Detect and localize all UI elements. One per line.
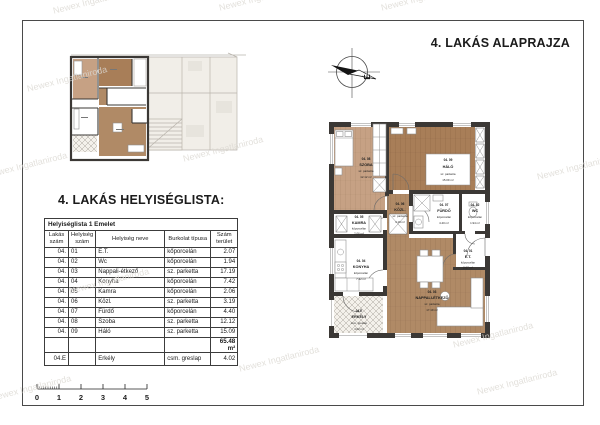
watermark: Newex Ingatlaniroda: [52, 0, 134, 16]
table-caption: Helyiséglista 1 Emelet: [45, 219, 238, 231]
page-title-roomlist: 4. LAKÁS HELYISÉGLISTA:: [58, 193, 224, 207]
svg-text:2: 2: [79, 393, 83, 402]
svg-text:4.40 m²: 4.40 m²: [439, 221, 449, 225]
svg-text:04. 02: 04. 02: [471, 203, 480, 207]
compass-icon: É: [326, 46, 382, 102]
table-row: 04.01E.T.kőporcelán2.07: [45, 248, 238, 258]
svg-text:4: 4: [123, 393, 128, 402]
watermark: Newex Ingatlaniroda: [380, 0, 462, 13]
svg-text:kőporcelán: kőporcelán: [354, 271, 369, 275]
table-row: 04.05Kamrakőporcelán2.06: [45, 288, 238, 298]
svg-text:2.07 m²: 2.07 m²: [463, 266, 473, 270]
room-list-table: Helyiséglista 1 Emelet Lakás szám Helyis…: [44, 218, 238, 366]
wardrobe-strip-boxes: [476, 128, 484, 188]
svg-text:04. 05: 04. 05: [355, 215, 364, 219]
overview-stairs: [146, 119, 182, 150]
compass-north-label: É: [363, 74, 372, 80]
svg-text:4.02 m²: 4.02 m²: [354, 327, 364, 331]
table-row: 04.07Fürdőkőporcelán4.40: [45, 308, 238, 318]
svg-text:kőporcelán: kőporcelán: [352, 227, 367, 231]
svg-text:KÖZL.: KÖZL.: [394, 207, 405, 212]
col-header: Szám terület: [211, 231, 238, 248]
svg-text:7.42 m²: 7.42 m²: [356, 277, 366, 281]
col-header: Helyiség szám: [69, 231, 96, 248]
svg-text:3: 3: [101, 393, 105, 402]
svg-text:HÁLÓ: HÁLÓ: [443, 164, 454, 169]
table-row: 04.04Konyhakőporcelán7.42: [45, 278, 238, 288]
svg-text:sz. parketta: sz. parketta: [441, 172, 456, 176]
svg-text:3.19 m²: 3.19 m²: [395, 220, 405, 224]
svg-text:12.12 m²: 12.12 m²: [360, 175, 371, 179]
svg-text:5: 5: [145, 393, 149, 402]
watermark: Newex Ingatlaniroda: [218, 0, 300, 13]
svg-text:kőporcelán: kőporcelán: [437, 215, 452, 219]
svg-text:sz. parketta: sz. parketta: [425, 302, 440, 306]
table-total-row: 65.48 m²: [45, 338, 238, 353]
total-area: 65.48 m²: [211, 338, 238, 353]
table-header-row: Lakás szám Helyiség szám Helyiség neve B…: [45, 231, 238, 248]
svg-text:E.T.: E.T.: [465, 255, 472, 259]
table-balcony-row: 04.E Erkélycsm. greslap 4.02: [45, 353, 238, 366]
table-row: 04.09Hálósz. parketta15.09: [45, 328, 238, 338]
svg-text:KONYHA: KONYHA: [353, 265, 370, 269]
svg-text:04. 07: 04. 07: [440, 203, 449, 207]
svg-text:ERKÉLY: ERKÉLY: [351, 314, 367, 319]
col-header: Lakás szám: [45, 231, 69, 248]
svg-text:04. 08: 04. 08: [362, 157, 371, 161]
scale-bar: 0 1 2 3 4 5: [30, 381, 154, 403]
overview-plan: [58, 53, 248, 173]
main-floorplan: 04. 08 SZOBA sz. parketta 12.12 m² 04. 0…: [325, 110, 510, 350]
svg-text:1: 1: [57, 393, 61, 402]
svg-text:SZOBA: SZOBA: [359, 163, 373, 167]
col-header: Helyiség neve: [96, 231, 165, 248]
label-halo: 04. 09 HÁLÓ sz. parketta 15.09 m²: [426, 154, 470, 185]
svg-text:kőporcelán: kőporcelán: [461, 261, 476, 265]
svg-text:kőporcelán: kőporcelán: [468, 215, 483, 219]
col-header: Burkolat típusa: [165, 231, 211, 248]
svg-text:2.06 m²: 2.06 m²: [354, 232, 364, 236]
svg-text:WC: WC: [472, 209, 479, 213]
wardrobe-symbol: [373, 124, 386, 192]
svg-text:04.E: 04.E: [356, 309, 363, 313]
svg-text:FÜRDŐ: FÜRDŐ: [437, 208, 451, 213]
table-row: 04.03Nappali-étkezősz. parketta17.19: [45, 268, 238, 278]
svg-text:1.94 m²: 1.94 m²: [470, 221, 480, 225]
svg-text:04. 06: 04. 06: [396, 202, 405, 206]
svg-text:04. 03: 04. 03: [428, 290, 437, 294]
table-row: 04.02Wckőporcelán1.94: [45, 258, 238, 268]
overview-building: [145, 57, 237, 150]
table-row: 04.08Szobasz. parketta12.12: [45, 318, 238, 328]
page-title-plan: 4. LAKÁS ALAPRAJZA: [431, 36, 570, 50]
svg-text:csm. greslap: csm. greslap: [351, 321, 368, 325]
svg-text:04. 09: 04. 09: [444, 158, 453, 162]
svg-text:sz. parketta: sz. parketta: [393, 214, 408, 218]
svg-text:NAPPALI-ÉTKEZŐ: NAPPALI-ÉTKEZŐ: [415, 295, 448, 300]
table-row: 04.06Közl.sz. parketta3.19: [45, 298, 238, 308]
svg-text:sz. parketta: sz. parketta: [359, 169, 374, 173]
drawing-sheet: Newex Ingatlaniroda Newex Ingatlaniroda …: [0, 0, 600, 425]
svg-text:04. 01: 04. 01: [464, 249, 473, 253]
svg-text:KAMRA: KAMRA: [352, 221, 366, 225]
svg-text:0: 0: [35, 393, 39, 402]
overview-apartment: [71, 57, 148, 160]
svg-text:17.19 m²: 17.19 m²: [426, 308, 437, 312]
svg-text:15.09 m²: 15.09 m²: [442, 178, 453, 182]
svg-text:04. 04: 04. 04: [357, 259, 366, 263]
